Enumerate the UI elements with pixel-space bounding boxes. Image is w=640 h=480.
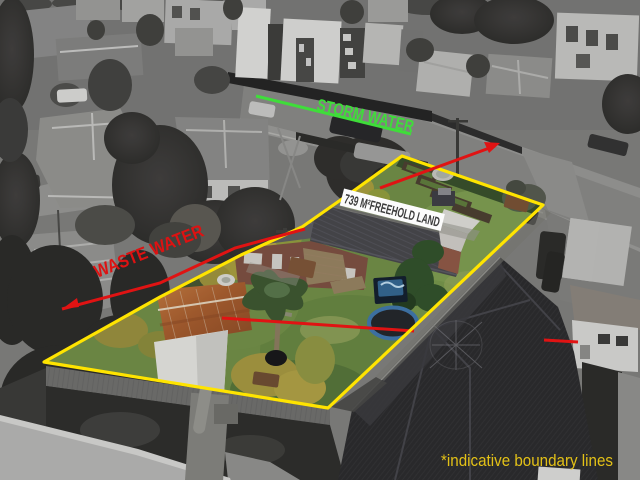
svg-text:*indicative boundary lines: *indicative boundary lines bbox=[441, 452, 613, 470]
